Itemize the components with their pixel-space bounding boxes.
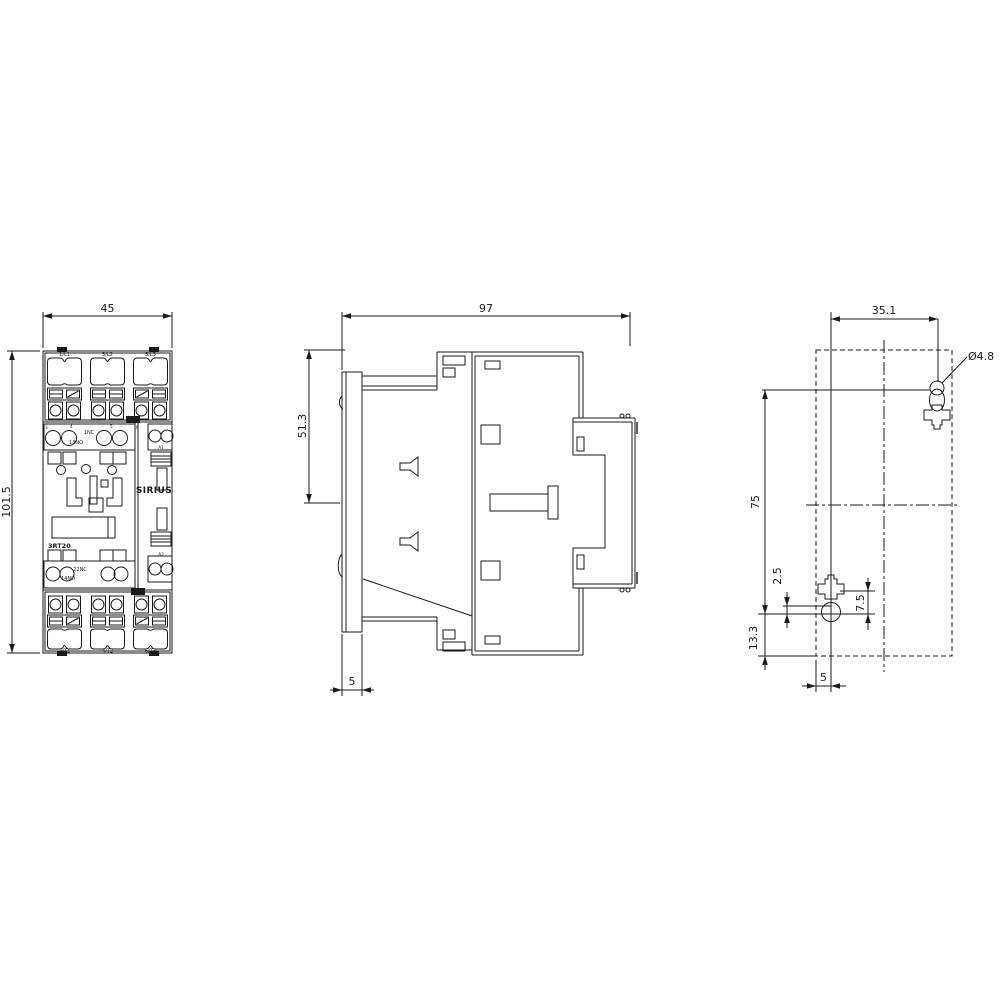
top-terminal-block: 1/L1 3/L2 5/L3 <box>43 351 172 422</box>
arrowhead <box>342 313 351 319</box>
clip-nub <box>626 414 630 418</box>
clip-nub <box>626 588 630 592</box>
terminal-label: 2/T1 <box>59 649 70 655</box>
aux-terminal <box>46 431 61 446</box>
screw-terminal <box>111 405 122 416</box>
aux-mark: 6 <box>136 425 139 430</box>
aux-terminal <box>101 567 115 581</box>
arrowhead <box>865 614 871 623</box>
aux-contact-area: 3 4 5 6 1NC 13NO 3RT20 <box>44 416 145 595</box>
cable-funnel <box>400 457 418 476</box>
coil-screw <box>149 563 161 575</box>
arrowhead <box>9 644 15 653</box>
arrowhead <box>306 494 312 503</box>
arrowhead <box>865 582 871 591</box>
screw-terminal <box>68 405 79 416</box>
terminal-label: 3/L2 <box>102 352 113 358</box>
terminal-pole: 5/L3 <box>134 352 168 419</box>
arrowhead <box>163 313 172 319</box>
hole-spacing-y-dimension: 75 13.3 <box>747 390 768 670</box>
arrowhead <box>333 687 342 693</box>
screw-terminal <box>93 599 104 610</box>
side-depth-dimension: 97 <box>342 302 630 370</box>
screw-terminal <box>93 405 104 416</box>
terminal-pole: 6/T3 <box>134 596 168 655</box>
arrowhead <box>929 316 938 322</box>
contactor-dimension-drawing: 45 101.5 1/L1 <box>0 0 1000 1000</box>
dim-depth-label: 97 <box>479 302 493 315</box>
dim-rail-label: 5 <box>349 675 356 688</box>
coil-terminal-column: A1 SIRIUS A2 <box>136 424 173 582</box>
screw-terminal <box>111 599 122 610</box>
arrowhead <box>762 656 768 665</box>
aux-label-nc2: 22NC <box>73 567 87 573</box>
coil-screw <box>149 430 161 442</box>
terminal-pole: 4/T2 <box>91 596 125 655</box>
coil-screw <box>161 430 173 442</box>
dim-edge-offset-label: 5 <box>820 671 827 684</box>
top-keyhole <box>924 381 950 429</box>
coil-screw <box>161 563 173 575</box>
dim-spacing-x-label: 35.1 <box>872 304 897 317</box>
coil-a1-label: A1 <box>158 445 164 450</box>
terminal-pole: 3/L2 <box>91 352 125 419</box>
aux-label-no: 13NO <box>69 440 83 446</box>
arrowhead <box>807 683 816 689</box>
edge-offset-dimension: 5 <box>802 671 846 689</box>
aux-label-nc: 1NC <box>84 430 95 436</box>
latch-mark <box>126 416 140 423</box>
clip-nub <box>620 588 624 592</box>
bottom-terminal-block: 2/T1 4/T2 6/T3 <box>43 590 172 655</box>
release-lug <box>338 554 342 577</box>
arrowhead <box>784 597 790 606</box>
dim-bottom-offset-label: 13.3 <box>747 626 760 651</box>
front-width-dimension: 45 <box>43 302 172 348</box>
screw-terminal <box>50 405 61 416</box>
arrowhead <box>831 683 840 689</box>
cage-clamp-opening <box>134 629 168 649</box>
screw-terminal <box>136 599 147 610</box>
coil-recess <box>573 418 605 588</box>
arrowhead <box>362 687 371 693</box>
terminal-pole: 2/T1 <box>48 596 82 655</box>
aux-label-no2: 14NO <box>61 576 75 582</box>
dim-spacing-y-label: 75 <box>749 495 762 509</box>
hole-diameter-callout: Ø4.8 <box>942 350 994 383</box>
dim-slot-offset-label: 2.5 <box>771 567 784 585</box>
coil-block <box>573 414 637 592</box>
slot-offset-dimension: 2.5 <box>771 567 790 628</box>
cage-clamp-opening <box>134 358 168 385</box>
cage-clamp-opening <box>48 358 82 385</box>
arrowhead <box>43 313 52 319</box>
side-profile <box>338 352 637 655</box>
brand-label: SIRIUS <box>136 486 172 496</box>
screw-terminal <box>154 599 165 610</box>
clip-nub <box>620 414 624 418</box>
aux-terminal <box>97 431 112 446</box>
front-strip <box>342 372 362 632</box>
aux-mark: 4 <box>70 424 73 429</box>
cross-slot <box>924 405 950 429</box>
aux-mark: 5 <box>110 424 113 429</box>
terminal-label: 5/L3 <box>145 352 156 358</box>
terminal-pole: 1/L1 <box>48 352 82 419</box>
screw-terminal <box>50 599 61 610</box>
screw-terminal <box>154 405 165 416</box>
front-view: 45 101.5 1/L1 <box>0 302 173 656</box>
aux-terminal <box>113 431 128 446</box>
aux-terminal <box>46 567 60 581</box>
handle-cap <box>548 486 558 519</box>
cage-clamp-opening <box>48 629 82 649</box>
screw-terminal <box>136 405 147 416</box>
dim-slot-to-hole-label: 7.5 <box>854 594 867 612</box>
aux-mark: 3 <box>45 425 48 430</box>
mechanism-dot <box>82 465 91 474</box>
mechanism-dot <box>108 466 117 475</box>
slot-to-hole-dimension: 7.5 <box>854 578 871 630</box>
arrowhead <box>762 390 768 399</box>
cage-clamp-opening <box>91 358 125 385</box>
mechanism-shape <box>67 478 82 506</box>
mechanism-shape <box>107 478 122 506</box>
drill-hole <box>930 381 944 395</box>
cage-clamp-opening <box>91 629 125 649</box>
arrowhead <box>9 351 15 360</box>
model-label: 3RT20 <box>48 542 71 550</box>
hole-spacing-x-dimension: 35.1 <box>831 304 938 322</box>
side-rail-dimension: 5 <box>330 634 374 696</box>
arrowhead <box>831 316 840 322</box>
screw-terminal <box>68 599 79 610</box>
terminal-label: 1/L1 <box>59 352 70 358</box>
arrowhead <box>306 350 312 359</box>
terminal-label: 4/T2 <box>102 649 113 655</box>
dimensional-drawing-page: 45 101.5 1/L1 <box>0 0 1000 1000</box>
arrowhead <box>621 313 630 319</box>
aux-terminal <box>114 567 128 581</box>
cable-funnel <box>400 532 418 551</box>
terminal-label: 6/T3 <box>145 649 156 655</box>
dim-diameter-label: Ø4.8 <box>968 350 994 363</box>
dim-width-label: 45 <box>101 302 115 315</box>
dim-upper-label: 51.3 <box>296 414 309 439</box>
drilling-plan: 35.1 Ø4.8 75 13.3 <box>747 304 994 692</box>
dim-height-label: 101.5 <box>0 486 13 518</box>
arrowhead <box>784 614 790 623</box>
side-view: 97 51.3 5 <box>296 302 637 696</box>
nameplate-window <box>52 517 115 538</box>
mechanism-dot <box>57 466 66 475</box>
diagonal-edge <box>363 579 472 616</box>
handle-bar <box>490 494 548 511</box>
arrowhead <box>762 605 768 614</box>
front-height-dimension: 101.5 <box>0 351 40 653</box>
side-upper-dimension: 51.3 <box>296 350 345 503</box>
